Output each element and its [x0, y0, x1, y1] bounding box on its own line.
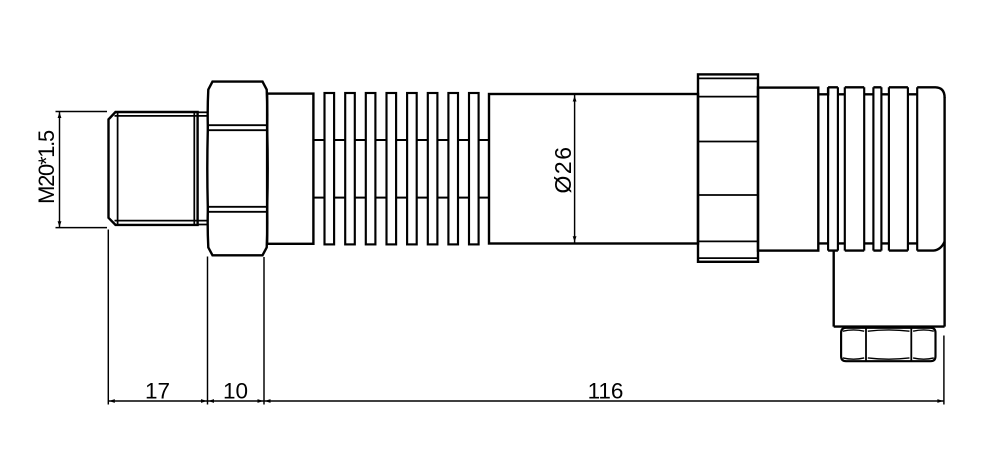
- svg-text:17: 17: [145, 378, 170, 403]
- svg-text:10: 10: [223, 378, 248, 403]
- svg-text:M20*1.5: M20*1.5: [34, 130, 59, 204]
- svg-text:Ø26: Ø26: [550, 146, 576, 194]
- svg-text:116: 116: [588, 378, 624, 403]
